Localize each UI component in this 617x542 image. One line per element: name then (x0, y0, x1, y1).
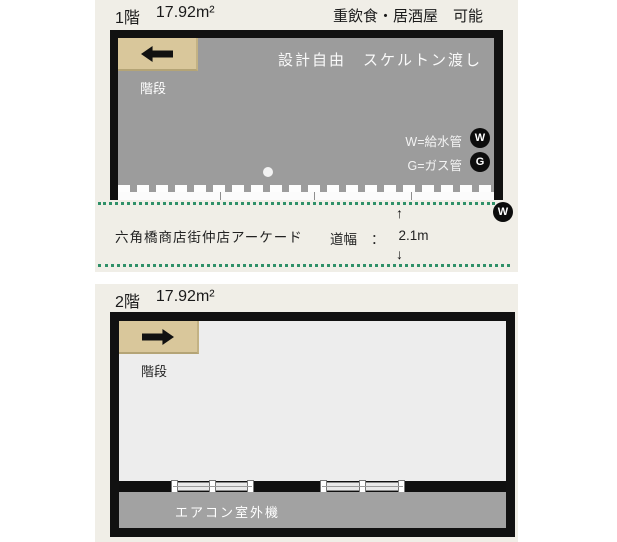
window-group-left (172, 482, 253, 491)
floor2-stairs-box (119, 321, 199, 354)
floor1-area: 17.92m² (156, 4, 215, 28)
gas-badge: G (470, 152, 490, 172)
road-width-separator: ： (371, 228, 385, 248)
shopfront-divider (411, 192, 412, 200)
floor2-panel: 2階 17.92m² 階段 (95, 284, 518, 542)
floor2-plan: 階段 エアコン室外機 (110, 312, 515, 537)
floor1-panel: 1階 17.92m² 重飲食・居酒屋 可能 階段 設計自由 スケルトン渡し W=… (95, 0, 518, 272)
street-name: 六角橋商店街仲店アーケード (115, 226, 303, 246)
floor2-title: 2階 (115, 288, 140, 312)
road-width-down-arrow-icon: ↓ (396, 247, 403, 261)
balcony: エアコン室外機 (119, 492, 506, 528)
floor-marker-dot (263, 167, 273, 177)
gas-legend: G=ガス管 (407, 155, 462, 174)
floor1-plan: 階段 設計自由 スケルトン渡し W=給水管 W G=ガス管 G (110, 30, 503, 200)
water-legend: W=給水管 (405, 131, 462, 150)
shopfront-divider (220, 192, 221, 200)
road-width-label: 道幅 (330, 228, 357, 248)
shutter-dashes (118, 185, 494, 192)
arcade-dotted-line-top (98, 202, 495, 205)
balcony-label: エアコン室外機 (175, 502, 280, 521)
floor1-header: 1階 17.92m² (115, 4, 215, 28)
floor1-stairs-label: 階段 (140, 78, 166, 97)
arcade-dotted-line-bottom (98, 264, 510, 267)
balcony-wall (119, 481, 506, 492)
street-water-badge: W (493, 202, 513, 222)
shopfront-divider (314, 192, 315, 200)
floor2-area: 17.92m² (156, 288, 215, 312)
road-width-up-arrow-icon: ↑ (396, 206, 403, 220)
floorplan-page: 1階 17.92m² 重飲食・居酒屋 可能 階段 設計自由 スケルトン渡し W=… (0, 0, 617, 542)
floor2-header: 2階 17.92m² (115, 288, 215, 312)
floor2-stairs-label: 階段 (141, 361, 167, 380)
shopfront-band (118, 185, 494, 200)
floor1-stairs-box (118, 38, 198, 71)
usage-note: 重飲食・居酒屋 可能 (333, 5, 483, 26)
right-arrow-icon (142, 329, 174, 345)
water-badge: W (470, 128, 490, 148)
floor1-title: 1階 (115, 4, 140, 28)
road-width-annotation: 道幅 ： 2.1m (330, 228, 429, 248)
left-arrow-icon (141, 46, 173, 62)
interior-note: 設計自由 スケルトン渡し (278, 49, 482, 70)
road-width-value: 2.1m (399, 228, 429, 248)
window-group-right (321, 482, 404, 491)
